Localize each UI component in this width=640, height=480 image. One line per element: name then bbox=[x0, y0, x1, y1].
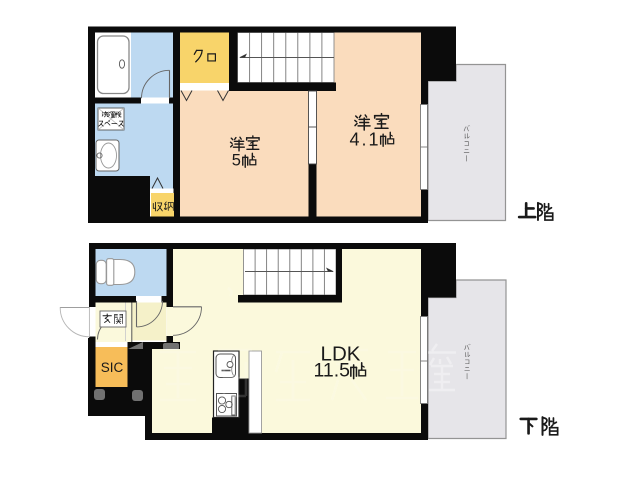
svg-text:4.1: 4.1 bbox=[349, 129, 380, 149]
svg-text:11.5: 11.5 bbox=[313, 360, 350, 382]
svg-text:5: 5 bbox=[232, 151, 241, 169]
svg-text:SIC: SIC bbox=[101, 360, 124, 375]
